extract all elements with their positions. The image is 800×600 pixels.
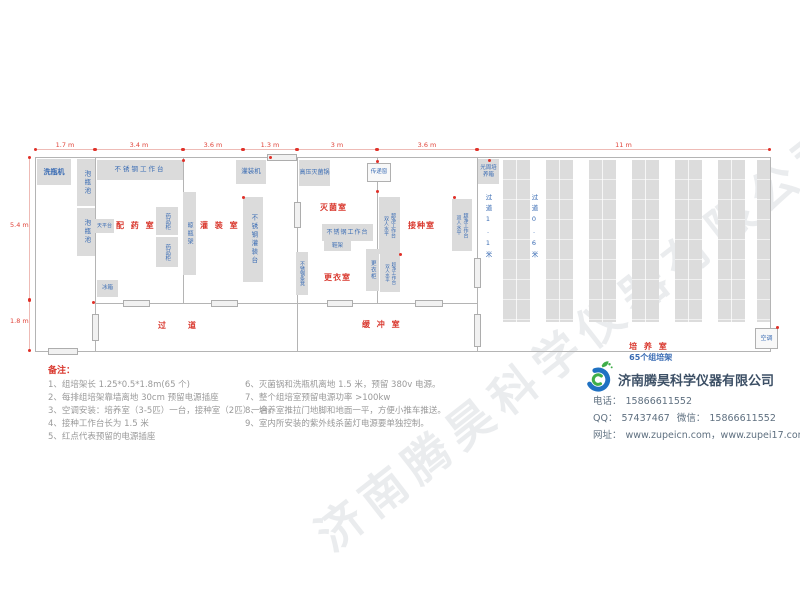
power-dot (399, 253, 402, 256)
equip-air-conditioner: 空调 (755, 328, 778, 349)
culture-rack-row (675, 160, 702, 322)
room-label-buffer: 缓 冲 室 (362, 319, 402, 330)
culture-rack-row (718, 160, 745, 322)
dim-left-2-label: 1.8 m (10, 317, 29, 325)
room-label-sterilize: 灭菌室 (320, 202, 347, 213)
wall-right (770, 157, 771, 352)
equip-autoclave: 高压灭菌锅 (299, 160, 330, 186)
note-line: 8、培养室推拉门地脚和地面一平，方便小推车推送。 (245, 404, 446, 416)
aisle-label-2: 过道0.6米 (529, 194, 539, 279)
dim-top-1: 1.7 m (35, 149, 95, 150)
company-website: 网址：www.zupeicn.com，www.zupei17.com (593, 427, 800, 441)
note-line: 5、红点代表预留的电源插座 (48, 430, 155, 442)
power-dot (453, 196, 456, 199)
company-qq-wechat: QQ：57437467 微信：15866611552 (593, 410, 780, 424)
power-dot (269, 156, 272, 159)
equip-clean-bench-1: 双人水平 超净工作台 (379, 197, 400, 254)
door (474, 258, 481, 288)
door (474, 314, 481, 347)
company-logo (585, 361, 613, 392)
equip-filling-machine: 灌装机 (236, 160, 266, 184)
power-dot (92, 301, 95, 304)
company-phone: 电话：15866611552 (593, 393, 696, 407)
dim-top-5: 3 m (297, 149, 377, 150)
equip-clean-bench-2: 双人水平 超净工作台 (380, 254, 400, 292)
dim-top-7: 11 m (477, 149, 770, 150)
culture-rack-count: 65个组培架 (629, 353, 672, 362)
dim-left-1-label: 5.4 m (10, 221, 29, 229)
equip-steel-bench: 不锈钢条凳 (296, 252, 308, 295)
equip-fridge: 冰箱 (97, 280, 118, 297)
wall-top (35, 157, 771, 158)
note-line: 2、每排组培架靠墙离地 30cm 预留电源插座 (48, 391, 219, 403)
room-label-culture: 培 养 室 65个组培架 (610, 332, 672, 372)
equip-medicine-cabinet-1: 药品柜 (156, 207, 178, 235)
equip-locker: 更衣柜 (366, 249, 379, 291)
door (92, 314, 99, 341)
equip-soak-pool-1: 泡瓶池 (77, 159, 95, 206)
equip-balance-table: 天平台 (95, 219, 114, 233)
dim-top-4: 1.3 m (243, 149, 297, 150)
equip-bottle-washer: 洗瓶机 (37, 159, 71, 185)
culture-rack-row (632, 160, 659, 322)
equip-shoe-rack: 鞋架 (324, 241, 351, 251)
room-label-prep: 配 药 室 (116, 220, 156, 231)
equip-transfer-window: 传递窗 (367, 163, 391, 182)
dim-top-6: 3.6 m (377, 149, 477, 150)
equip-steel-worktable-sterilize: 不锈钢工作台 (322, 224, 373, 241)
power-dot (488, 159, 491, 162)
door (327, 300, 353, 307)
equip-clean-bench-3: 双人水平 超净工作台 (452, 199, 472, 251)
notes-title: 备注： (48, 363, 75, 376)
aisle-label-1: 过道1.1米 (483, 194, 493, 279)
note-line: 6、灭菌锅和洗瓶机离地 1.5 米，预留 380v 电源。 (245, 378, 441, 390)
equip-soak-pool-2: 泡瓶池 (77, 208, 95, 256)
culture-rack-row (503, 160, 530, 322)
equip-steel-worktable-prep: 不锈钢工作台 (97, 160, 183, 180)
dim-top-3: 3.6 m (183, 149, 243, 150)
floor-plan-sheet: 济南腾昊科学仪器有限公司 1.7 m 3.4 m 3.6 m 1.3 m 3 m… (0, 0, 800, 600)
power-dot (376, 160, 379, 163)
door (294, 202, 301, 228)
power-dot (182, 159, 185, 162)
room-label-corridor: 过 道 (158, 320, 198, 331)
equip-steel-filling-table: 不锈钢灌装台 (243, 197, 263, 282)
note-line: 4、接种工作台长为 1.5 米 (48, 417, 149, 429)
culture-rack-row (757, 160, 770, 322)
power-dot (242, 196, 245, 199)
equip-medicine-cabinet-2: 药品柜 (156, 237, 178, 267)
note-line: 1、组培架长 1.25*0.5*1.8m(65 个) (48, 378, 190, 390)
dim-left-1 (29, 157, 30, 300)
company-name: 济南腾昊科学仪器有限公司 (618, 370, 774, 389)
room-label-filling: 灌 装 室 (200, 220, 240, 231)
room-label-inoculation: 接种室 (408, 220, 435, 231)
power-dot (776, 326, 779, 329)
door (415, 300, 443, 307)
dim-left-2 (29, 300, 30, 351)
room-label-dressing: 更衣室 (324, 272, 351, 283)
culture-rack-row (546, 160, 573, 322)
culture-rack-row (589, 160, 616, 322)
door (211, 300, 238, 307)
equip-bottle-dry-rack: 晾瓶架 (183, 192, 196, 275)
equip-photoperiod-incubator: 光周培养箱 (478, 159, 499, 184)
door (48, 348, 78, 355)
note-line: 3、空调安装：培养室（3-5匹）一台，接种室（2匹）一台。 (48, 404, 277, 416)
door (123, 300, 150, 307)
dim-top-2: 3.4 m (95, 149, 183, 150)
note-line: 7、整个组培室预留电源功率 >100kw (245, 391, 390, 403)
note-line: 9、室内所安装的紫外线杀菌灯电源要单独控制。 (245, 417, 429, 429)
power-dot (376, 190, 379, 193)
wall-left (35, 157, 36, 352)
